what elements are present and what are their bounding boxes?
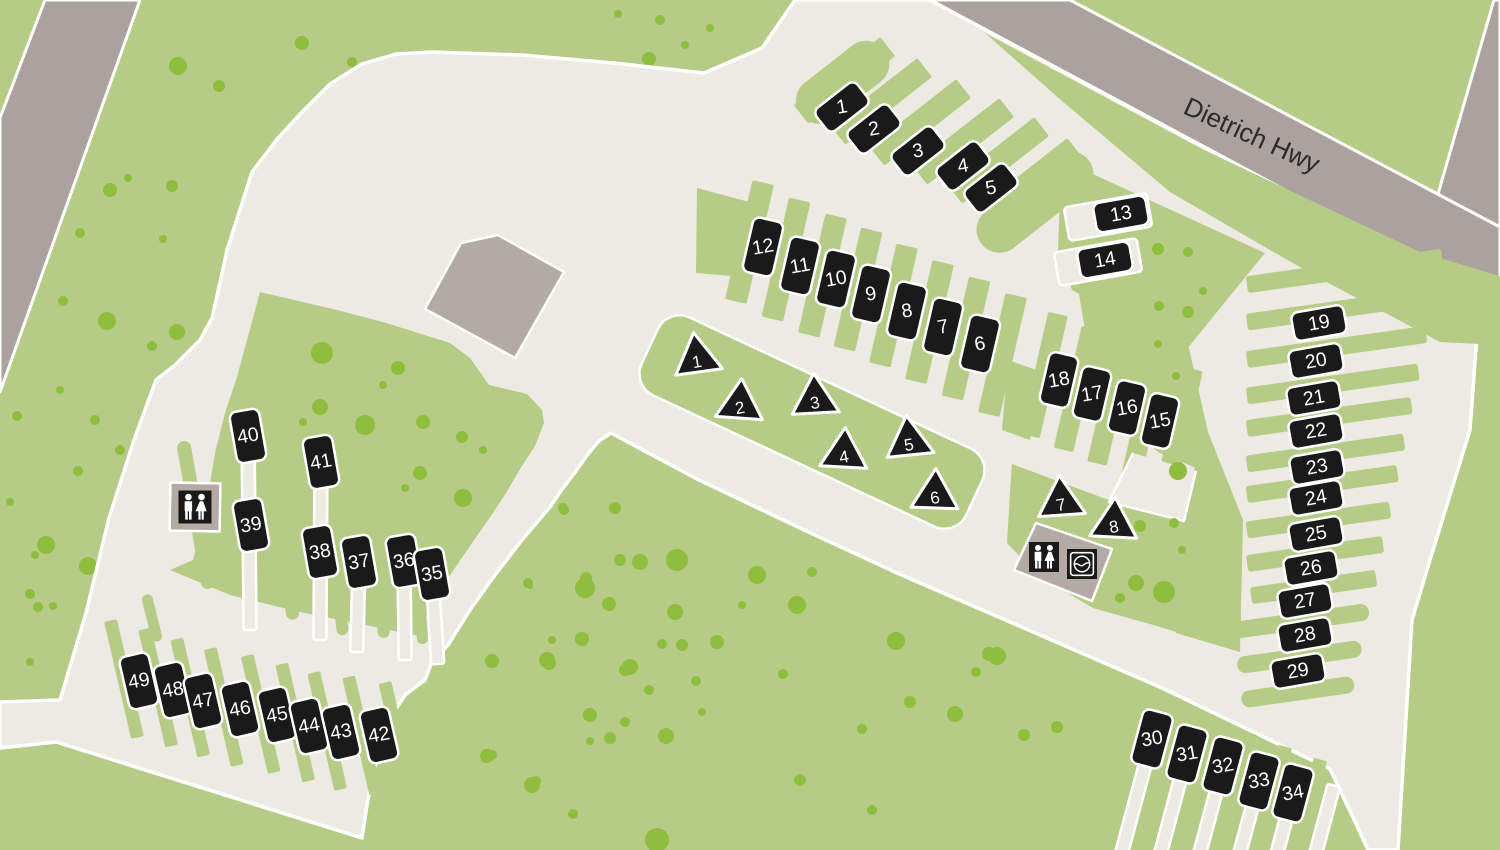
svg-text:31: 31 <box>1174 741 1199 766</box>
svg-text:21: 21 <box>1301 385 1326 410</box>
svg-text:11: 11 <box>788 253 812 278</box>
svg-text:10: 10 <box>823 266 848 291</box>
svg-text:27: 27 <box>1292 588 1317 613</box>
svg-text:41: 41 <box>308 449 333 474</box>
svg-text:33: 33 <box>1246 768 1271 793</box>
svg-text:19: 19 <box>1306 310 1331 335</box>
svg-text:40: 40 <box>235 423 260 448</box>
svg-text:14: 14 <box>1092 247 1117 272</box>
svg-text:24: 24 <box>1303 485 1328 510</box>
svg-text:20: 20 <box>1303 348 1328 373</box>
svg-text:29: 29 <box>1285 658 1310 683</box>
svg-text:36: 36 <box>391 548 416 573</box>
svg-text:48: 48 <box>160 677 185 702</box>
svg-text:30: 30 <box>1139 726 1164 751</box>
svg-text:42: 42 <box>366 722 391 747</box>
svg-text:37: 37 <box>346 549 371 574</box>
svg-text:16: 16 <box>1114 395 1139 420</box>
svg-text:47: 47 <box>190 688 215 713</box>
svg-text:17: 17 <box>1079 381 1104 406</box>
svg-text:28: 28 <box>1292 622 1317 647</box>
svg-text:22: 22 <box>1303 418 1328 443</box>
svg-text:43: 43 <box>328 719 353 744</box>
svg-text:25: 25 <box>1303 521 1328 546</box>
svg-text:46: 46 <box>227 696 252 721</box>
svg-text:44: 44 <box>296 713 321 738</box>
svg-text:39: 39 <box>238 512 263 537</box>
svg-text:12: 12 <box>750 234 775 259</box>
svg-text:15: 15 <box>1147 408 1172 433</box>
svg-text:26: 26 <box>1298 555 1323 580</box>
svg-text:49: 49 <box>126 668 151 693</box>
svg-text:34: 34 <box>1280 780 1305 805</box>
svg-text:18: 18 <box>1046 367 1071 392</box>
svg-text:32: 32 <box>1210 753 1235 778</box>
svg-text:13: 13 <box>1108 201 1133 226</box>
svg-text:45: 45 <box>264 702 289 727</box>
svg-text:38: 38 <box>307 539 332 564</box>
svg-text:23: 23 <box>1304 454 1329 479</box>
svg-text:35: 35 <box>419 561 444 586</box>
